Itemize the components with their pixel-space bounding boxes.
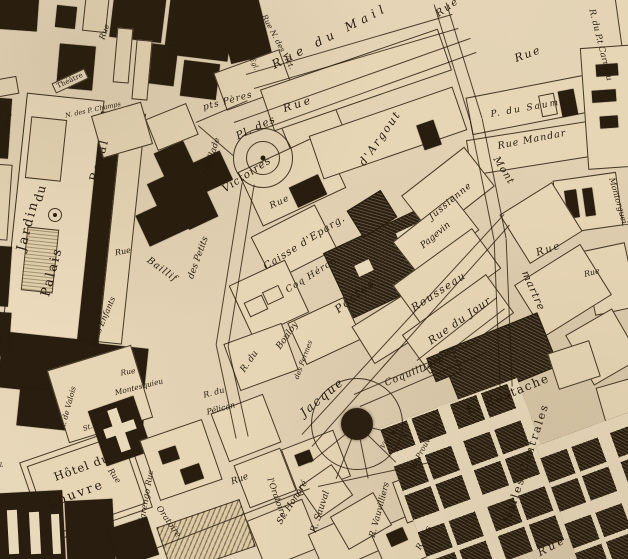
city-block	[600, 115, 619, 128]
historic-paris-map: Rue du MailRued'ArgoutRueP. du SaumonRue…	[0, 0, 628, 559]
map-circle-feature	[53, 213, 57, 217]
city-block	[55, 5, 77, 29]
city-block	[29, 512, 41, 554]
city-block	[592, 89, 617, 103]
city-block	[0, 0, 39, 31]
map-circle-feature	[356, 423, 359, 426]
label-royal-fragment: Roy.	[0, 461, 4, 472]
city-block	[25, 116, 67, 181]
city-block	[180, 60, 220, 100]
